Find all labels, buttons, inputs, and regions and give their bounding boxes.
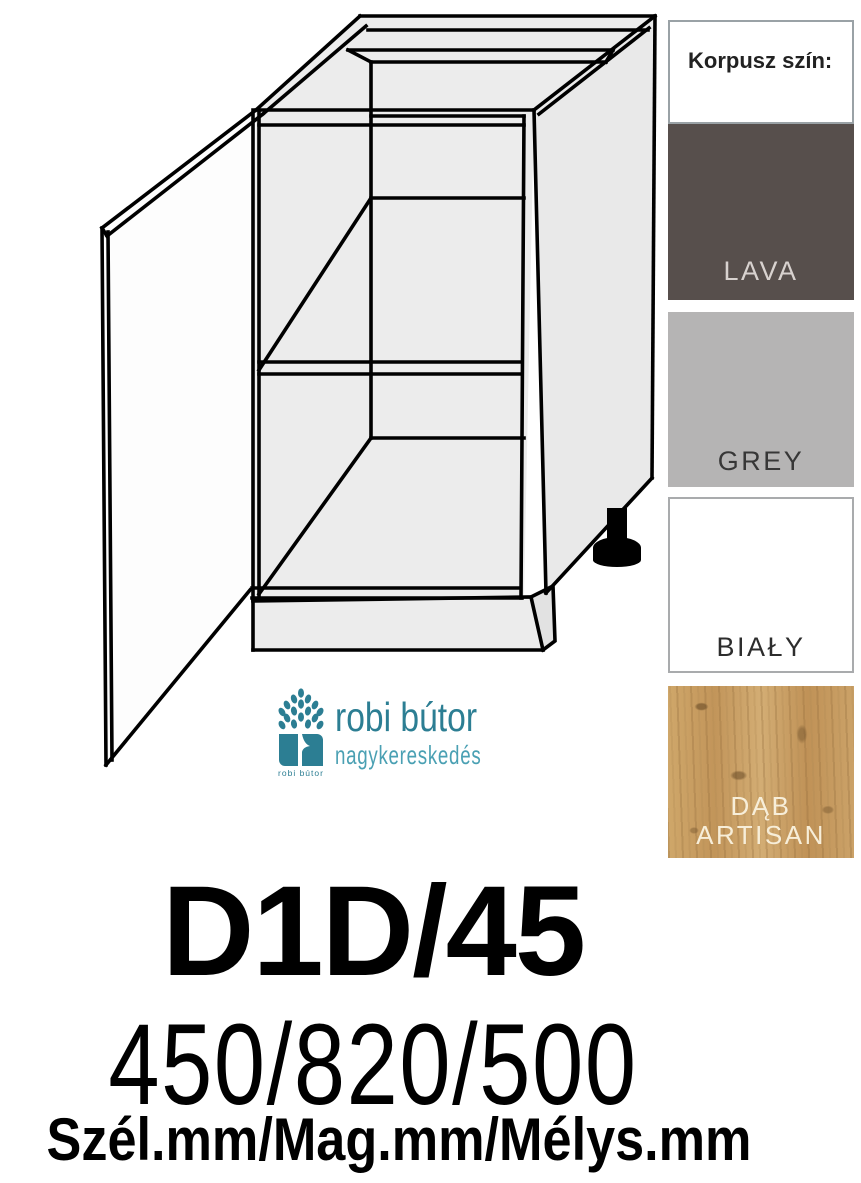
product-sheet: Korpusz szín: LAVA GREY BIAŁY DĄB ARTISA… xyxy=(0,0,861,1183)
logo-subtitle-text: nagykereskedés xyxy=(335,742,481,768)
color-swatch-dab-artisan: DĄB ARTISAN xyxy=(668,686,854,858)
product-dimensions-label: Szél.mm/Mag.mm/Mélys.mm xyxy=(47,1110,670,1170)
cabinet-front-interior xyxy=(253,110,534,598)
tree-icon: robi bútor xyxy=(276,686,326,778)
korpusz-szin-header-box: Korpusz szín: xyxy=(668,20,854,124)
color-swatch-bialy: BIAŁY xyxy=(668,497,854,673)
swatch-label: DĄB ARTISAN xyxy=(686,792,836,858)
korpusz-szin-label: Korpusz szín: xyxy=(688,48,852,74)
swatch-label: GREY xyxy=(668,446,854,487)
logo-icon-caption: robi bútor xyxy=(278,768,324,778)
product-code: D1D/45 xyxy=(0,868,746,996)
plinth-front xyxy=(253,597,543,650)
logo-brand-text: robi bútor xyxy=(335,697,502,738)
swatch-label: LAVA xyxy=(668,256,854,300)
color-swatch-grey: GREY xyxy=(668,312,854,487)
robi-butor-logo: robi bútor robi bútor nagykereskedés xyxy=(276,686,538,778)
color-swatch-lava: LAVA xyxy=(668,124,854,300)
swatch-label: BIAŁY xyxy=(670,632,852,671)
